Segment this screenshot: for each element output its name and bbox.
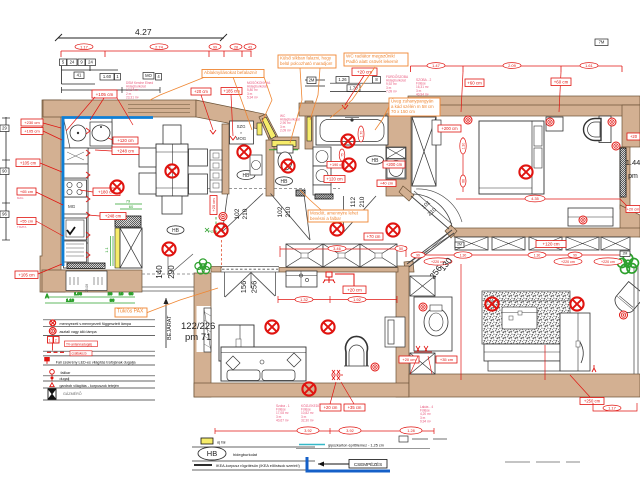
svg-text:pm: pm	[628, 173, 638, 180]
svg-text:+65 cm: +65 cm	[20, 189, 34, 194]
svg-text:4.35: 4.35	[531, 197, 538, 201]
svg-text:102: 102	[234, 208, 241, 219]
svg-text:mennyezeti v.mennyezeti függes: mennyezeti v.mennyezeti függesztett lámp…	[60, 322, 132, 326]
svg-text:2.74: 2.74	[155, 44, 164, 49]
svg-text:+105 cm: +105 cm	[24, 129, 40, 134]
svg-text:75: 75	[341, 153, 345, 157]
svg-text:290: 290	[167, 265, 176, 279]
svg-text:+20 cm: +20 cm	[402, 357, 416, 362]
svg-text:40,94 m²: 40,94 m²	[416, 92, 429, 96]
svg-text:+200 cm: +200 cm	[386, 162, 403, 167]
svg-text:28: 28	[234, 45, 238, 49]
svg-text:HB: HB	[243, 173, 251, 179]
svg-text:1: 1	[49, 339, 51, 343]
svg-text:MOG: MOG	[236, 136, 247, 141]
svg-text:102: 102	[277, 206, 284, 217]
svg-text:210: 210	[242, 208, 249, 219]
svg-text:99: 99	[573, 254, 577, 258]
svg-text:+230 cm: +230 cm	[24, 120, 40, 125]
svg-text:WC radiátor megszűnik!: WC radiátor megszűnik!	[346, 54, 395, 59]
svg-text:+35 cm: +35 cm	[440, 357, 454, 362]
svg-text:24: 24	[88, 60, 93, 65]
svg-text:32,30 m²: 32,30 m²	[301, 418, 314, 422]
svg-text:7M: 7M	[599, 40, 605, 45]
svg-text:+105 cm: +105 cm	[18, 273, 35, 278]
svg-text:dugalj: dugalj	[60, 377, 70, 381]
svg-text:MG: MG	[68, 204, 76, 209]
svg-text:43: 43	[248, 45, 252, 49]
svg-text:29: 29	[2, 126, 7, 131]
svg-text:99: 99	[416, 254, 420, 258]
svg-text:2M: 2M	[623, 252, 628, 256]
svg-text:+70 cm: +70 cm	[367, 234, 381, 239]
svg-text:140: 140	[155, 265, 164, 279]
svg-text:5,94 m²: 5,94 m²	[247, 95, 258, 99]
svg-text:1.60: 1.60	[103, 74, 112, 79]
svg-text:gipszkarton építőlemez - 1,25: gipszkarton építőlemez - 1,25 cm	[328, 444, 384, 448]
svg-text:1.92: 1.92	[353, 297, 362, 302]
svg-text:40,67 m²: 40,67 m²	[276, 418, 289, 422]
svg-text:9,94 m²: 9,94 m²	[420, 419, 431, 423]
svg-text:új fal: új fal	[217, 440, 226, 445]
svg-text:Üveg zuhanypangyán: Üveg zuhanypangyán	[391, 99, 434, 104]
svg-text:50: 50	[399, 247, 403, 251]
svg-text:+105 cm: +105 cm	[96, 92, 114, 97]
svg-text:2: 2	[55, 339, 57, 343]
svg-text:99: 99	[213, 45, 217, 49]
svg-text:210: 210	[359, 196, 366, 207]
svg-text:70 x 150 cm: 70 x 150 cm	[391, 109, 415, 114]
svg-text:+120 cm: +120 cm	[326, 177, 343, 182]
svg-text:24: 24	[70, 60, 75, 65]
svg-text:1.16: 1.16	[66, 298, 75, 303]
svg-text:GÁZMÉRŐ: GÁZMÉRŐ	[63, 391, 82, 396]
svg-text:+220 cm: +220 cm	[601, 260, 615, 264]
svg-text:Padló alatt csövét lekerni!: Padló alatt csövét lekerni!	[346, 59, 398, 64]
svg-text:25.08: 25.08	[85, 284, 89, 292]
svg-text:41: 41	[77, 73, 82, 78]
svg-text:1.30: 1.30	[534, 254, 541, 258]
svg-text:hidegburkolat: hidegburkolat	[233, 452, 258, 457]
svg-text:BEJÁRAT: BEJÁRAT	[166, 315, 173, 340]
svg-text:+20 cm: +20 cm	[324, 405, 338, 410]
svg-text:1.30: 1.30	[462, 143, 466, 150]
svg-text:TV-antennadugalj: TV-antennadugalj	[66, 342, 92, 346]
svg-text:26: 26	[108, 291, 113, 296]
svg-text:HB: HB	[281, 179, 289, 185]
svg-text:falikar: falikar	[61, 371, 72, 375]
svg-text:156: 156	[239, 281, 248, 294]
svg-text:asztali vagy álló lámpa: asztali vagy álló lámpa	[60, 330, 98, 334]
svg-text:+20 cm: +20 cm	[627, 208, 640, 212]
svg-text:1.44: 1.44	[626, 158, 640, 167]
svg-text:1.47: 1.47	[432, 63, 441, 68]
svg-text:+55 cm: +55 cm	[20, 219, 34, 224]
svg-text:2M: 2M	[457, 243, 462, 247]
svg-text:10: 10	[119, 291, 124, 296]
svg-text:1.17: 1.17	[608, 406, 617, 411]
svg-text:+250 cm: +250 cm	[584, 399, 601, 404]
svg-text:3.92: 3.92	[304, 429, 311, 433]
svg-text:1.17: 1.17	[80, 44, 89, 49]
svg-text:+120 cm: +120 cm	[543, 242, 560, 247]
svg-text:23,31 m²: 23,31 m²	[126, 95, 139, 99]
svg-text:210: 210	[285, 206, 292, 217]
svg-text:96: 96	[2, 212, 7, 217]
svg-text:3.46: 3.46	[333, 246, 342, 251]
svg-text:+20 cm: +20 cm	[194, 89, 208, 94]
svg-text:a kád szélén m 58 cm: a kád szélén m 58 cm	[391, 104, 434, 109]
svg-text:3.92: 3.92	[346, 429, 353, 433]
svg-text:CSEMPÉZÉS: CSEMPÉZÉS	[354, 461, 382, 467]
svg-text:112: 112	[350, 196, 357, 207]
svg-text:Mosdót, amennyire lehet: Mosdót, amennyire lehet	[310, 211, 359, 216]
svg-text:SZG: SZG	[237, 124, 246, 129]
svg-text:+120 cm: +120 cm	[117, 138, 134, 143]
svg-text:2M: 2M	[309, 78, 315, 83]
svg-text:Tükrös PAX: Tükrös PAX	[117, 309, 144, 315]
svg-text:122/226: 122/226	[181, 321, 215, 332]
svg-text:Külső síkban falazni, hogy: Külső síkban falazni, hogy	[280, 56, 332, 61]
svg-text:+20 cm: +20 cm	[211, 198, 216, 212]
svg-text:60: 60	[129, 291, 134, 296]
svg-text:IKEA-korpusz rögzítésün (IKEA: IKEA-korpusz rögzítésün (IKEA előírások …	[216, 464, 301, 468]
svg-text:+248 cm: +248 cm	[117, 149, 134, 154]
svg-text:+190 c: +190 c	[330, 163, 342, 167]
svg-text:88: 88	[462, 179, 466, 183]
svg-text:2,09 m²: 2,09 m²	[280, 128, 291, 132]
svg-text:+35 cm: +35 cm	[348, 405, 362, 410]
svg-text:86: 86	[110, 298, 115, 303]
svg-text:+40 cm: +40 cm	[380, 181, 394, 186]
svg-text:+248 cm: +248 cm	[105, 214, 122, 219]
svg-text:256: 256	[250, 281, 259, 294]
svg-text:+220 cm: +220 cm	[561, 260, 575, 264]
svg-text:TISZTA: TISZTA	[17, 225, 27, 229]
svg-text:1.70: 1.70	[360, 131, 364, 138]
svg-text:1.08: 1.08	[74, 291, 83, 296]
svg-text:HB: HB	[372, 158, 380, 164]
svg-text:1.32: 1.32	[300, 297, 309, 302]
svg-text:4.27: 4.27	[135, 27, 152, 37]
svg-text:+60 cm: +60 cm	[467, 81, 482, 86]
svg-text:gardrob világítás - korpuszok: gardrob világítás - korpuszok tetején	[60, 384, 119, 388]
svg-text:Fali szekrény LED-es világítás: Fali szekrény LED-es világítás trafójána…	[56, 361, 137, 365]
svg-text:bevésni a falba!: bevésni a falba!	[310, 216, 341, 221]
svg-text:1.30: 1.30	[460, 254, 467, 258]
svg-text:1.26: 1.26	[338, 77, 347, 82]
svg-text:1.61: 1.61	[585, 63, 594, 68]
svg-text:belül polcozható maradjon!: belül polcozható maradjon!	[280, 61, 332, 66]
svg-text:1.1: 1.1	[104, 246, 109, 252]
svg-text:2.09: 2.09	[508, 63, 517, 68]
svg-text:+200 cm: +200 cm	[441, 126, 458, 131]
svg-text:7,09 m²: 7,09 m²	[386, 89, 397, 93]
svg-text:1.28: 1.28	[407, 429, 414, 433]
svg-text:60: 60	[129, 204, 134, 209]
svg-text:HB: HB	[207, 449, 217, 458]
svg-text:MO: MO	[145, 73, 152, 78]
svg-text:90: 90	[2, 169, 7, 174]
svg-text:Ablaknyilásokat befalazni!: Ablaknyilásokat befalazni!	[204, 70, 257, 75]
svg-text:pm 71: pm 71	[185, 332, 211, 343]
svg-text:+105 cm: +105 cm	[20, 161, 37, 166]
svg-text:+20: +20	[630, 134, 638, 139]
svg-text:MAG: MAG	[17, 196, 23, 200]
svg-text:csatlakozó: csatlakozó	[72, 352, 87, 356]
svg-text:79: 79	[126, 199, 131, 204]
svg-text:HB: HB	[172, 228, 180, 234]
svg-text:+60 cm: +60 cm	[554, 80, 569, 85]
svg-text:+20 cm: +20 cm	[347, 288, 362, 293]
